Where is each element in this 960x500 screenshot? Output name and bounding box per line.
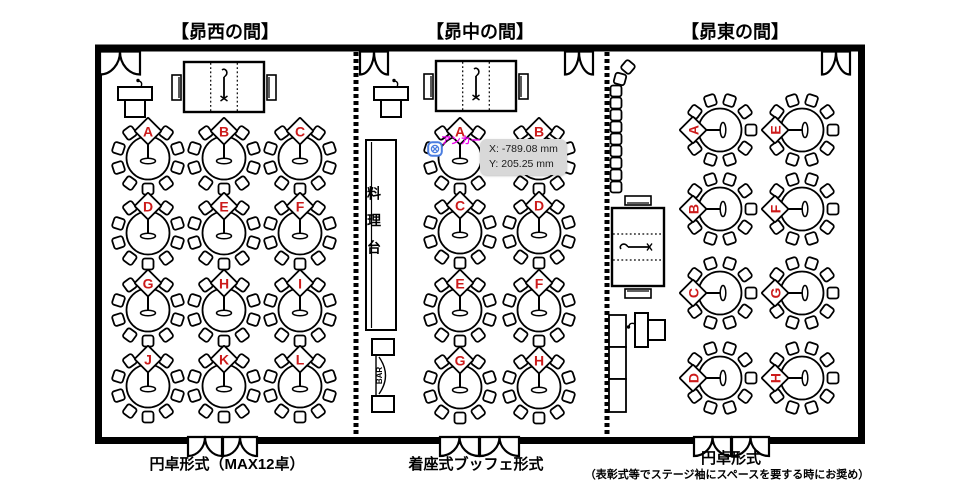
anchor-label: アンカー [441, 132, 481, 147]
stored-table [609, 347, 626, 379]
chair-icon [122, 250, 137, 265]
round-table[interactable]: G [762, 257, 839, 330]
chair-icon [819, 220, 834, 235]
table-stand-base [532, 232, 547, 238]
double-door-icon [565, 52, 593, 75]
chair-icon [513, 175, 528, 190]
chair-icon [295, 412, 306, 423]
head-table-west[interactable] [172, 62, 276, 112]
chair-icon [264, 293, 278, 307]
table-label: H [534, 353, 544, 369]
chair-icon [264, 141, 278, 155]
chair-icon [785, 257, 799, 271]
round-table[interactable]: H [762, 342, 839, 415]
chair-icon [235, 277, 250, 292]
chair-icon [235, 125, 250, 140]
table-label: D [534, 198, 544, 214]
chair-icon [434, 249, 449, 264]
table-stand-base [141, 158, 156, 164]
chair-icon [723, 94, 737, 108]
table-label: H [219, 276, 229, 292]
table-label: E [455, 276, 464, 292]
chair-icon [143, 336, 154, 347]
chair-icon [723, 316, 737, 330]
chair-icon [534, 258, 545, 269]
chair-icon [122, 277, 137, 292]
floorplan-canvas: 【昴西の間】 【昴中の間】 【昴東の間】 [0, 0, 960, 500]
stage-head-table-east[interactable] [612, 196, 664, 298]
table-label: B [219, 124, 229, 140]
chair-icon [483, 293, 497, 307]
table-label: C [455, 198, 465, 214]
chair-icon [311, 175, 326, 190]
chair-icon [424, 161, 438, 175]
chair-icon [434, 277, 449, 292]
chair-icon [171, 141, 185, 155]
chair-icon [219, 412, 230, 423]
double-door-icon [822, 52, 850, 75]
chair-icon [247, 161, 261, 175]
chair-icon [171, 389, 185, 403]
chair-icon [513, 199, 528, 214]
round-table[interactable]: B [188, 118, 261, 195]
chair-icon [746, 125, 757, 136]
round-table[interactable]: E [762, 94, 839, 167]
bar-station-label: BAR [375, 367, 384, 384]
table-label: C [295, 124, 305, 140]
chair-icon [703, 94, 717, 108]
chair-icon [471, 199, 486, 214]
chair-icon [434, 175, 449, 190]
chair-icon [424, 370, 438, 384]
chair-icon [611, 158, 622, 169]
chair-icon [434, 404, 449, 419]
table-stand-base [802, 202, 808, 217]
round-table[interactable]: K [188, 346, 261, 423]
chair-icon [311, 353, 326, 368]
round-table[interactable]: B [680, 173, 757, 246]
chair-icon [687, 104, 702, 119]
table-label: G [143, 276, 154, 292]
chair-icon [785, 153, 799, 167]
chair-icon [122, 353, 137, 368]
chair-icon [235, 327, 250, 342]
double-door-icon [100, 52, 140, 75]
chair-icon [703, 153, 717, 167]
round-table[interactable]: C [264, 118, 337, 195]
table-stand-base [720, 371, 726, 386]
table-stand-base [453, 310, 468, 316]
round-table[interactable]: F [762, 173, 839, 246]
podium-top [374, 87, 408, 100]
bar-table [372, 396, 394, 412]
chair-icon [311, 327, 326, 342]
chair-icon [455, 336, 466, 347]
chair-icon [274, 403, 289, 418]
table-label: E [219, 199, 228, 215]
chair-icon [620, 59, 635, 74]
chair-icon [198, 327, 213, 342]
table-stand-base [293, 233, 308, 239]
chair-icon [703, 232, 717, 246]
chair-icon [819, 183, 834, 198]
chair-icon [769, 141, 784, 156]
podium-body [381, 100, 401, 117]
table-stand-base [720, 202, 726, 217]
chair-icon [703, 173, 717, 187]
chair-icon [534, 413, 545, 424]
chair-icon [611, 122, 622, 133]
chair-icon [235, 200, 250, 215]
podium-top [118, 87, 152, 100]
chair-icon [769, 104, 784, 119]
chair-icon [323, 236, 337, 250]
chair-icon [235, 403, 250, 418]
chair-icon [611, 134, 622, 145]
chair-icon [198, 277, 213, 292]
chair-icon [143, 412, 154, 423]
chair-icon [483, 313, 497, 327]
chair-icon [198, 125, 213, 140]
chair-icon [424, 390, 438, 404]
chair-icon [264, 313, 278, 327]
round-table[interactable]: C [424, 192, 497, 269]
chair-icon [805, 342, 819, 356]
chair-icon [455, 258, 466, 269]
chair-icon [737, 220, 752, 235]
chair-icon [247, 236, 261, 250]
caption-center: 着座式ブッフェ形式 [408, 453, 543, 474]
round-table[interactable]: L [264, 346, 337, 423]
chair-icon [723, 232, 737, 246]
chair-icon [550, 175, 565, 190]
chair-icon [171, 293, 185, 307]
table-stand-base [141, 310, 156, 316]
chair-icon [687, 352, 702, 367]
tooltip-x-value: X: -789.08 mm [489, 142, 558, 157]
chair-icon [611, 170, 622, 181]
chair-icon [687, 141, 702, 156]
chair-icon [550, 277, 565, 292]
chair-icon [112, 389, 126, 403]
chair-icon [611, 98, 622, 109]
podium-body [648, 320, 665, 340]
chair-icon [311, 250, 326, 265]
table-label: H [768, 373, 784, 383]
chair-icon [171, 216, 185, 230]
food-station-label: 料理台 [364, 186, 384, 267]
chair-icon [219, 336, 230, 347]
chair-icon [687, 304, 702, 319]
chair-icon [550, 199, 565, 214]
chair-icon [264, 161, 278, 175]
chair-icon [562, 313, 576, 327]
chair-icon [159, 200, 174, 215]
chair-icon [828, 204, 839, 215]
round-table[interactable]: I [264, 270, 337, 347]
chair-icon [687, 220, 702, 235]
chair-icon [274, 200, 289, 215]
chair-icon [737, 104, 752, 119]
table-stand-base [453, 158, 468, 164]
chair-icon [687, 389, 702, 404]
chair-icon [785, 316, 799, 330]
podium-body [125, 100, 145, 117]
chair-icon [746, 288, 757, 299]
chair-icon [503, 390, 517, 404]
chair-icon [188, 141, 202, 155]
chair-icon [503, 215, 517, 229]
chair-icon [159, 277, 174, 292]
chair-icon [703, 257, 717, 271]
table-label: C [686, 288, 702, 298]
chair-icon [311, 125, 326, 140]
chair-icon [687, 267, 702, 282]
chair-icon [746, 373, 757, 384]
chair-icon [198, 200, 213, 215]
chair-icon [737, 267, 752, 282]
podium-east[interactable] [627, 313, 665, 347]
chair-icon [112, 216, 126, 230]
chair-row-east[interactable] [611, 59, 636, 192]
chair-icon [613, 72, 626, 85]
chair-icon [562, 293, 576, 307]
podium-mic-icon [627, 325, 630, 328]
chair-icon [198, 403, 213, 418]
chair-icon [122, 327, 137, 342]
chair-icon [769, 352, 784, 367]
chair-icon [737, 183, 752, 198]
round-table[interactable]: G [112, 270, 185, 347]
chair-icon [805, 232, 819, 246]
chair-icon [471, 175, 486, 190]
chair-icon [247, 293, 261, 307]
chair-icon [611, 146, 622, 157]
chair-icon [323, 161, 337, 175]
chair-icon [828, 373, 839, 384]
chair-icon [805, 153, 819, 167]
chair-icon [805, 316, 819, 330]
chair-icon [264, 369, 278, 383]
chair-icon [159, 250, 174, 265]
table-stand-base [217, 233, 232, 239]
anchor-icon[interactable] [427, 141, 443, 157]
table-label: E [768, 125, 784, 134]
tooltip-y-value: Y: 205.25 mm [489, 157, 558, 172]
podium-center[interactable] [374, 79, 408, 117]
table-label: F [535, 276, 544, 292]
chair-icon [746, 204, 757, 215]
chair-icon [235, 250, 250, 265]
chair-icon [198, 353, 213, 368]
table-stand-base [802, 286, 808, 301]
chair-icon [483, 370, 497, 384]
head-table-center[interactable] [424, 61, 528, 111]
chair-icon [503, 313, 517, 327]
round-table[interactable]: E [424, 270, 497, 347]
chair-icon [503, 293, 517, 307]
chair-icon [723, 173, 737, 187]
table-label: K [219, 352, 229, 368]
chair-icon [471, 404, 486, 419]
chair-icon [611, 86, 622, 97]
chair-icon [769, 267, 784, 282]
chair-icon [737, 304, 752, 319]
chair-icon [723, 257, 737, 271]
table-label: D [686, 373, 702, 383]
chair-icon [785, 401, 799, 415]
chair-icon [703, 401, 717, 415]
round-table[interactable]: G [424, 347, 497, 424]
chair-icon [112, 236, 126, 250]
round-table[interactable]: F [503, 270, 576, 347]
chair-icon [188, 293, 202, 307]
round-table[interactable]: C [680, 257, 757, 330]
chair-icon [737, 141, 752, 156]
chair-icon [828, 125, 839, 136]
double-door-icon [360, 52, 388, 75]
table-label: J [144, 352, 152, 368]
chair-icon [805, 173, 819, 187]
chair-icon [703, 342, 717, 356]
chair-icon [819, 389, 834, 404]
podium-west[interactable] [118, 79, 152, 117]
table-label: L [296, 352, 305, 368]
chair-icon [159, 403, 174, 418]
chair-icon [805, 257, 819, 271]
table-stand-base [532, 310, 547, 316]
round-table[interactable]: A [112, 118, 185, 195]
round-table[interactable]: H [503, 347, 576, 424]
chair-icon [513, 354, 528, 369]
chair-icon [819, 304, 834, 319]
chair-icon [219, 259, 230, 270]
table-stand-base [293, 310, 308, 316]
table-label: I [298, 276, 302, 292]
chair-icon [769, 389, 784, 404]
round-table[interactable]: A [680, 94, 757, 167]
chair-icon [503, 235, 517, 249]
chair-icon [247, 313, 261, 327]
table-label: B [686, 204, 702, 214]
chair-icon [503, 370, 517, 384]
chair-icon [828, 288, 839, 299]
chair-icon [323, 313, 337, 327]
round-table[interactable]: E [188, 193, 261, 270]
chair-icon [785, 94, 799, 108]
table-label: B [534, 124, 544, 140]
chair-icon [513, 327, 528, 342]
podium-mic-icon [392, 79, 395, 82]
chair-icon [122, 175, 137, 190]
chair-icon [235, 175, 250, 190]
table-stand-base [720, 286, 726, 301]
chair-icon [188, 313, 202, 327]
table-stand-base [217, 386, 232, 392]
chair-icon [112, 161, 126, 175]
chair-icon [483, 235, 497, 249]
caption-west: 円卓形式（MAX12卓） [149, 453, 304, 474]
chair-icon [434, 327, 449, 342]
round-table[interactable]: F [264, 193, 337, 270]
table-label: F [296, 199, 305, 215]
table-stand-base [532, 387, 547, 393]
chair-icon [122, 125, 137, 140]
caption-east-note: （表彰式等でステージ袖にスペースを要する時にお奨め） [585, 466, 869, 482]
chair-icon [171, 313, 185, 327]
chair-icon [805, 94, 819, 108]
podium-mic-icon [136, 79, 139, 82]
chair-icon [471, 354, 486, 369]
chair-icon [274, 277, 289, 292]
chair-icon [247, 216, 261, 230]
chair-icon [295, 336, 306, 347]
chair-icon [424, 235, 438, 249]
chair-icon [785, 232, 799, 246]
chair-icon [188, 236, 202, 250]
round-table[interactable]: H [188, 270, 261, 347]
stored-table [609, 379, 626, 412]
table-label: F [768, 204, 784, 213]
chair-icon [323, 389, 337, 403]
chair-icon [188, 369, 202, 383]
chair-icon [785, 342, 799, 356]
chair-icon [274, 250, 289, 265]
round-table[interactable]: J [112, 346, 185, 423]
chair-icon [805, 401, 819, 415]
table-stand-base [720, 123, 726, 138]
chair-icon [188, 161, 202, 175]
chair-icon [737, 352, 752, 367]
chair-icon [483, 215, 497, 229]
chair-icon [159, 125, 174, 140]
chair-icon [112, 313, 126, 327]
chair-icon [295, 259, 306, 270]
chair-icon [424, 215, 438, 229]
table-stand-base [453, 387, 468, 393]
table-label: A [143, 124, 153, 140]
round-table[interactable]: D [680, 342, 757, 415]
chair-icon [769, 304, 784, 319]
table-stand-base [141, 233, 156, 239]
chair-icon [471, 277, 486, 292]
chair-icon [534, 336, 545, 347]
chair-icon [122, 200, 137, 215]
chair-icon [112, 293, 126, 307]
chair-icon [471, 327, 486, 342]
chair-icon [188, 389, 202, 403]
chair-icon [311, 403, 326, 418]
podium-top [635, 313, 648, 347]
table-stand-base [293, 158, 308, 164]
table-stand-base [217, 310, 232, 316]
chair-icon [550, 327, 565, 342]
table-label: G [768, 287, 784, 298]
storage-tables-east[interactable] [609, 315, 626, 412]
chair-icon [159, 327, 174, 342]
chair-icon [703, 316, 717, 330]
chair-icon [513, 249, 528, 264]
chair-icon [723, 401, 737, 415]
table-stand-base [217, 158, 232, 164]
chair-icon [562, 390, 576, 404]
chair-icon [819, 141, 834, 156]
table-stand-base [141, 386, 156, 392]
chair-icon [424, 313, 438, 327]
caption-east: 円卓形式 [701, 447, 761, 468]
round-table[interactable]: D [112, 193, 185, 270]
round-table[interactable]: D [503, 192, 576, 269]
